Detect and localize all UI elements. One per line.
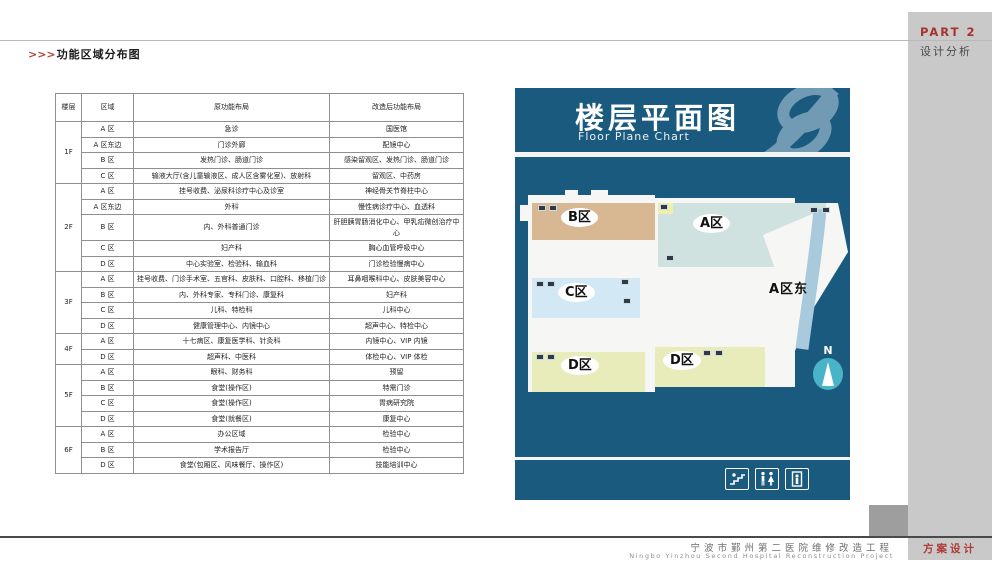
stair-marker-icon (547, 281, 555, 287)
zone-cell: A 区 (82, 334, 134, 350)
original-function-cell: 眼科、财务科 (134, 365, 330, 381)
new-function-cell: 内镜中心、VIP 内镜 (330, 334, 464, 350)
zone-cell: C 区 (82, 396, 134, 412)
table-row: B 区食堂(操作区)特需门诊 (56, 380, 464, 396)
table-row: 4FA 区十七病区、康复医学科、针灸科内镜中心、VIP 内镜 (56, 334, 464, 350)
floor-cell: 5F (56, 365, 82, 427)
table-row: C 区妇产科胸心血管呼吸中心 (56, 241, 464, 257)
column-header: 区域 (82, 94, 134, 122)
function-table: 楼层区域原功能布局改造后功能布局1FA 区急诊国医馆A 区东边门诊外廊配镜中心B… (55, 93, 464, 474)
new-function-cell: 耳鼻咽喉科中心、皮肤美容中心 (330, 272, 464, 288)
stair-marker-icon (538, 205, 546, 211)
zone-cell: A 区东边 (82, 137, 134, 153)
stair-marker-icon (536, 281, 544, 287)
new-function-cell: 胸心血管呼吸中心 (330, 241, 464, 257)
stair-marker-icon (536, 354, 544, 360)
original-function-cell: 学术报告厅 (134, 442, 330, 458)
table-row: C 区输液大厅(含儿童输液区、成人区含雾化室)、放射科留观区、中药房 (56, 168, 464, 184)
table-row: D 区中心实验室、检验科、输血科门诊检验慢病中心 (56, 256, 464, 272)
zone-cell: D 区 (82, 256, 134, 272)
compass-icon: N (811, 345, 845, 390)
zone-cell: A 区 (82, 427, 134, 443)
floor-cell: 2F (56, 184, 82, 272)
original-function-cell: 妇产科 (134, 241, 330, 257)
new-function-cell: 留观区、中药房 (330, 168, 464, 184)
table-row: B 区学术报告厅检验中心 (56, 442, 464, 458)
floor-plan-panel: 楼层平面图 Floor Plane Chart (515, 88, 850, 500)
legend-icons (725, 468, 809, 490)
zone-cell: A 区 (82, 365, 134, 381)
original-function-cell: 急诊 (134, 122, 330, 138)
original-function-cell: 食堂(操作区) (134, 380, 330, 396)
new-function-cell: 检验中心 (330, 427, 464, 443)
original-function-cell: 挂号收费、门诊手术室、五官科、皮肤科、口腔科、移植门诊 (134, 272, 330, 288)
title-arrows-icon: >>> (28, 48, 56, 61)
table-row: A 区东边门诊外廊配镜中心 (56, 137, 464, 153)
table-row: D 区食堂(包厢区、风味餐厅、操作区)技能培训中心 (56, 458, 464, 474)
page-title: >>>功能区域分布图 (28, 46, 141, 62)
original-function-cell: 外科 (134, 199, 330, 215)
table-row: D 区健康管理中心、内镜中心超声中心、特检中心 (56, 318, 464, 334)
table-row: D 区超声科、中医科体检中心、VIP 体检 (56, 349, 464, 365)
zone-cell: D 区 (82, 349, 134, 365)
new-function-cell: 特需门诊 (330, 380, 464, 396)
column-header: 楼层 (56, 94, 82, 122)
panel-subtitle: Floor Plane Chart (578, 130, 690, 143)
original-function-cell: 食堂(包厢区、风味餐厅、操作区) (134, 458, 330, 474)
table-row: B 区内、外科专家、专科门诊、康复科妇产科 (56, 287, 464, 303)
table-row: C 区儿科、特检科儿科中心 (56, 303, 464, 319)
floor-cell: 1F (56, 122, 82, 184)
section-label: 设计分析 (920, 43, 972, 59)
zone-cell: B 区 (82, 215, 134, 241)
zone-cell: B 区 (82, 287, 134, 303)
original-function-cell: 超声科、中医科 (134, 349, 330, 365)
stair-marker-icon (810, 207, 818, 213)
original-function-cell: 中心实验室、检验科、输血科 (134, 256, 330, 272)
zone-cell: B 区 (82, 380, 134, 396)
zone-cell: A 区东边 (82, 199, 134, 215)
hospital-logo-knot-icon (746, 88, 850, 152)
zone-cell: B 区 (82, 153, 134, 169)
table-row: B 区内、外科普通门诊肝胆胰胃肠消化中心、甲乳疝微创治疗中心 (56, 215, 464, 241)
original-function-cell: 内、外科专家、专科门诊、康复科 (134, 287, 330, 303)
zone-cell: A 区 (82, 184, 134, 200)
stair-marker-icon (660, 204, 668, 210)
original-function-cell: 输液大厅(含儿童输液区、成人区含雾化室)、放射科 (134, 168, 330, 184)
restroom-icon (755, 468, 779, 490)
zone-label-a: A区 (693, 214, 730, 233)
column-header: 改造后功能布局 (330, 94, 464, 122)
zone-table-wrap: 楼层区域原功能布局改造后功能布局1FA 区急诊国医馆A 区东边门诊外廊配镜中心B… (55, 93, 463, 474)
table-row: 3FA 区挂号收费、门诊手术室、五官科、皮肤科、口腔科、移植门诊耳鼻咽喉科中心、… (56, 272, 464, 288)
new-function-cell: 配镜中心 (330, 137, 464, 153)
zone-label-d2: D区 (663, 351, 701, 370)
zone-label-c: C区 (558, 283, 595, 302)
zone-cell: D 区 (82, 318, 134, 334)
original-function-cell: 门诊外廊 (134, 137, 330, 153)
table-row: 6FA 区办公区域检验中心 (56, 427, 464, 443)
elevator-icon (785, 468, 809, 490)
stair-marker-icon (549, 205, 557, 211)
new-function-cell: 胃病研究院 (330, 396, 464, 412)
floor-map: B区 A区 C区 D区 D区 A区东 N (515, 157, 850, 457)
original-function-cell: 十七病区、康复医学科、针灸科 (134, 334, 330, 350)
original-function-cell: 挂号收费、泌尿科诊疗中心及诊室 (134, 184, 330, 200)
new-function-cell: 神经骨关节脊柱中心 (330, 184, 464, 200)
zone-cell: D 区 (82, 411, 134, 427)
floor-cell: 3F (56, 272, 82, 334)
zone-cell: A 区 (82, 272, 134, 288)
table-row: A 区东边外科慢性病诊疗中心、血透科 (56, 199, 464, 215)
zone-label-d1: D区 (561, 356, 599, 375)
zone-cell: C 区 (82, 303, 134, 319)
stair-marker-icon (547, 354, 555, 360)
compass-n-label: N (811, 345, 845, 357)
new-function-cell: 体检中心、VIP 体检 (330, 349, 464, 365)
stair-marker-icon (621, 279, 629, 285)
original-function-cell: 食堂(操作区) (134, 396, 330, 412)
table-row: C 区食堂(操作区)胃病研究院 (56, 396, 464, 412)
new-function-cell: 超声中心、特检中心 (330, 318, 464, 334)
zone-cell: C 区 (82, 241, 134, 257)
footer-divider (0, 536, 992, 538)
original-function-cell: 办公区域 (134, 427, 330, 443)
original-function-cell: 发热门诊、肠道门诊 (134, 153, 330, 169)
stair-marker-icon (703, 350, 711, 356)
phase-tag: 方案设计 (908, 541, 992, 556)
original-function-cell: 食堂(就餐区) (134, 411, 330, 427)
new-function-cell: 国医馆 (330, 122, 464, 138)
stair-marker-icon (822, 207, 830, 213)
new-function-cell: 检验中心 (330, 442, 464, 458)
original-function-cell: 内、外科普通门诊 (134, 215, 330, 241)
table-row: B 区发热门诊、肠道门诊感染留观区、发热门诊、肠道门诊 (56, 153, 464, 169)
panel-footer-divider (515, 457, 850, 460)
new-function-cell: 康复中心 (330, 411, 464, 427)
zone-cell: A 区 (82, 122, 134, 138)
table-row: 1FA 区急诊国医馆 (56, 122, 464, 138)
panel-header: 楼层平面图 Floor Plane Chart (515, 88, 850, 152)
floor-cell: 4F (56, 334, 82, 365)
new-function-cell: 预留 (330, 365, 464, 381)
sidebar: PART 2 设计分析 (908, 12, 992, 560)
stair-marker-icon (715, 350, 723, 356)
new-function-cell: 技能培训中心 (330, 458, 464, 474)
floor-map-shapes (515, 157, 850, 457)
zone-cell: C 区 (82, 168, 134, 184)
new-function-cell: 肝胆胰胃肠消化中心、甲乳疝微创治疗中心 (330, 215, 464, 241)
new-function-cell: 儿科中心 (330, 303, 464, 319)
new-function-cell: 感染留观区、发热门诊、肠道门诊 (330, 153, 464, 169)
project-name-en: Ningbo Yinzhou Second Hospital Reconstru… (629, 552, 894, 560)
zone-cell: D 区 (82, 458, 134, 474)
table-row: D 区食堂(就餐区)康复中心 (56, 411, 464, 427)
column-header: 原功能布局 (134, 94, 330, 122)
top-divider (0, 40, 992, 41)
stair-marker-icon (666, 255, 674, 261)
floor-cell: 6F (56, 427, 82, 474)
part-label: PART 2 (920, 25, 976, 39)
slide: >>>功能区域分布图 楼层区域原功能布局改造后功能布局1FA 区急诊国医馆A 区… (0, 0, 992, 570)
zone-label-b: B区 (561, 208, 598, 227)
zone-cell: B 区 (82, 442, 134, 458)
stairs-icon (725, 468, 749, 490)
stair-marker-icon (623, 298, 631, 304)
new-function-cell: 妇产科 (330, 287, 464, 303)
table-row: 2FA 区挂号收费、泌尿科诊疗中心及诊室神经骨关节脊柱中心 (56, 184, 464, 200)
original-function-cell: 儿科、特检科 (134, 303, 330, 319)
gray-accent-block (869, 505, 908, 536)
zone-label-a-east: A区东 (769, 278, 808, 297)
new-function-cell: 门诊检验慢病中心 (330, 256, 464, 272)
original-function-cell: 健康管理中心、内镜中心 (134, 318, 330, 334)
page-title-text: 功能区域分布图 (57, 48, 141, 61)
table-row: 5FA 区眼科、财务科预留 (56, 365, 464, 381)
new-function-cell: 慢性病诊疗中心、血透科 (330, 199, 464, 215)
